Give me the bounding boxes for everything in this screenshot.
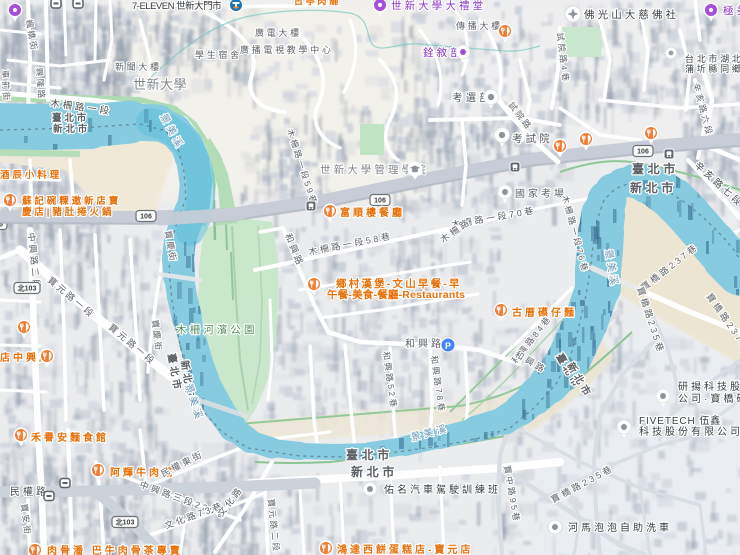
svg-text:極美: 極美 <box>723 4 740 17</box>
svg-text:鴻達西餅蛋糕店-寶元店: 鴻達西餅蛋糕店-寶元店 <box>337 543 473 555</box>
svg-text:慶店|豬肚捲火鍋: 慶店|豬肚捲火鍋 <box>22 206 114 218</box>
svg-text:研揚科技股份: 研揚科技股份 <box>678 380 740 393</box>
svg-text:7-ELEVEN 世新大門市: 7-ELEVEN 世新大門市 <box>132 0 222 12</box>
svg-text:世新大學大禮堂: 世新大學大禮堂 <box>391 0 486 12</box>
svg-text:106: 106 <box>140 214 152 221</box>
svg-text:古亭肉舖: 古亭肉舖 <box>294 0 341 6</box>
svg-text:106: 106 <box>374 198 386 205</box>
svg-text:公司·寶橋研發: 公司·寶橋研發 <box>678 392 740 405</box>
svg-text:臺北市: 臺北市 <box>52 112 89 124</box>
svg-text:廣播電視教學中心: 廣播電視教學中心 <box>240 44 334 55</box>
svg-text:廣電大樓: 廣電大樓 <box>255 27 302 38</box>
svg-text:酒辰小料理: 酒辰小料理 <box>0 169 62 181</box>
svg-text:P: P <box>445 341 451 351</box>
svg-text:木柵河濱公園: 木柵河濱公園 <box>176 323 258 336</box>
svg-text:新聞大樓: 新聞大樓 <box>115 61 162 72</box>
svg-text:考試院: 考試院 <box>512 132 553 145</box>
svg-text:臺北市: 臺北市 <box>346 447 393 462</box>
svg-text:蘇記碗粿邀新店寶: 蘇記碗粿邀新店寶 <box>21 195 121 207</box>
svg-text:北103: 北103 <box>18 284 37 293</box>
svg-text:午餐-美食-餐廳-Restaurants: 午餐-美食-餐廳-Restaurants <box>327 288 465 301</box>
svg-text:學生宿舍: 學生宿舍 <box>195 49 242 60</box>
svg-text:北103: 北103 <box>116 518 135 527</box>
svg-text:車前街: 車前街 <box>0 70 12 103</box>
svg-text:佑名汽車駕駛訓練班: 佑名汽車駕駛訓練班 <box>384 483 501 496</box>
svg-text:106: 106 <box>637 149 649 156</box>
svg-text:禾譽安麵食館: 禾譽安麵食館 <box>31 431 109 444</box>
svg-text:國家考場: 國家考場 <box>515 187 567 200</box>
svg-text:台北市湖北省: 台北市湖北省 <box>685 53 740 64</box>
svg-text:世新大學: 世新大學 <box>133 77 187 92</box>
svg-text:和興路: 和興路 <box>405 337 444 350</box>
svg-text:蒲圻縣同鄉會: 蒲圻縣同鄉會 <box>685 63 740 74</box>
svg-text:民權路: 民權路 <box>10 485 49 498</box>
svg-text:FIVETECH 伍鑫: FIVETECH 伍鑫 <box>639 414 721 427</box>
svg-text:肉骨潘 巴牛肉骨茶專賣: 肉骨潘 巴牛肉骨茶專賣 <box>47 544 183 555</box>
svg-text:新北市: 新北市 <box>53 123 90 135</box>
svg-text:臺北市: 臺北市 <box>632 161 679 176</box>
svg-text:新北市: 新北市 <box>630 180 677 195</box>
svg-text:河馬泡泡自助洗車: 河馬泡泡自助洗車 <box>568 521 672 534</box>
svg-text:佛光山大慈佛社: 佛光山大慈佛社 <box>584 8 679 21</box>
svg-text:富順樓餐廳: 富順樓餐廳 <box>340 206 405 219</box>
svg-text:科技股份有限公司: 科技股份有限公司 <box>639 425 740 438</box>
svg-text:新北市: 新北市 <box>351 464 398 479</box>
svg-text:傳播大樓: 傳播大樓 <box>456 20 503 31</box>
